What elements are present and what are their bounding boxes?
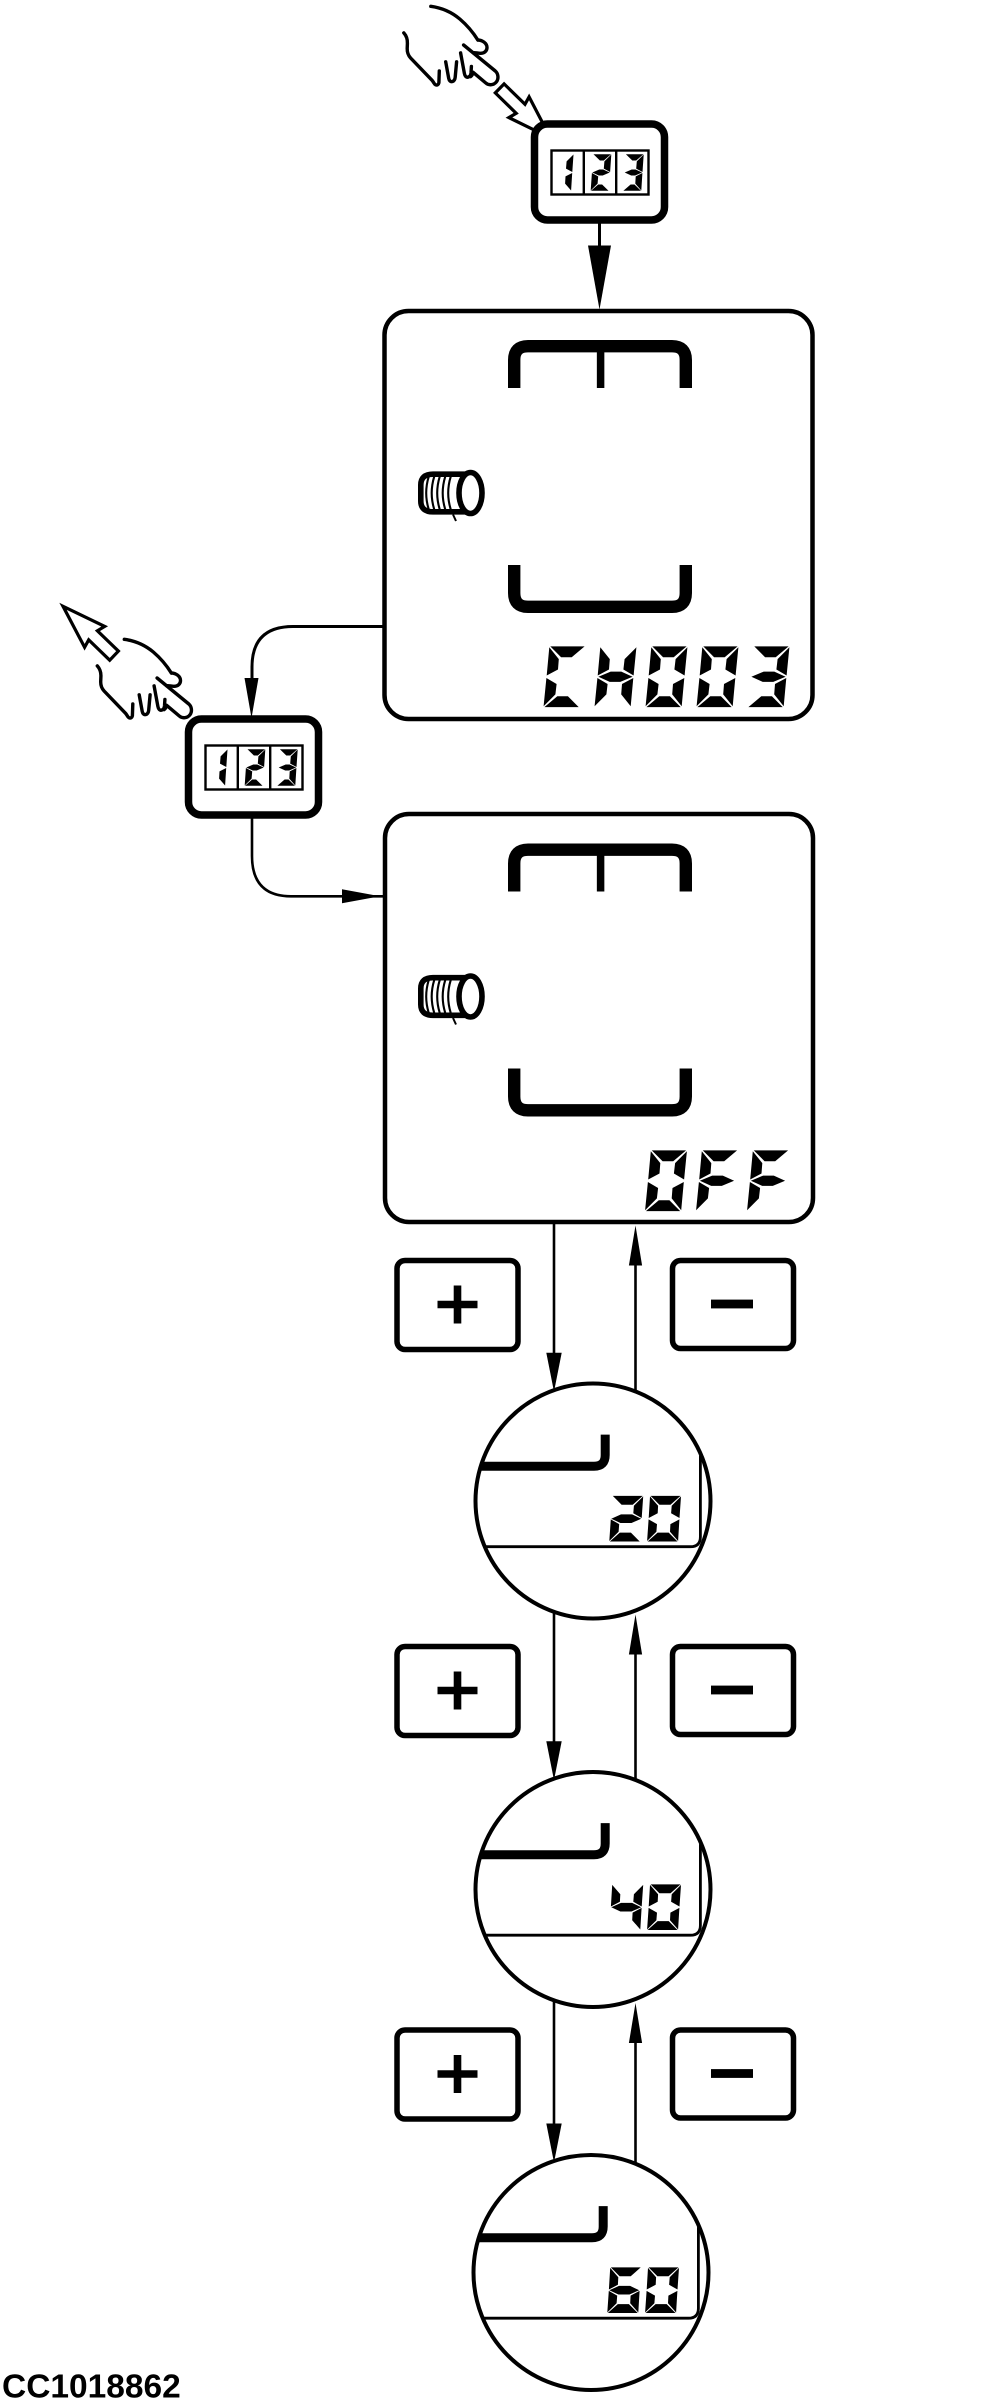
svg-text:CC1018862: CC1018862 (2, 2369, 181, 2403)
